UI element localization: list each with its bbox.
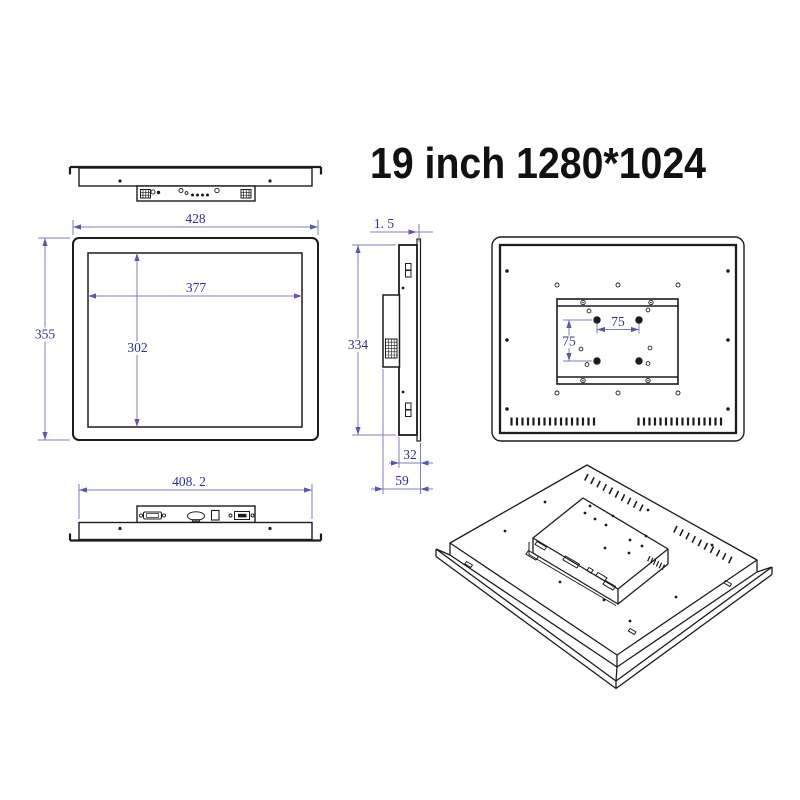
dim-bezel-thickness: 1. 5: [370, 216, 433, 242]
dim-label-428: 428: [185, 211, 206, 226]
bottom-body: [79, 523, 312, 540]
dim-label-1-5: 1. 5: [374, 216, 395, 231]
isometric-view: [436, 465, 772, 689]
page-title: 19 inch 1280*1024: [370, 139, 706, 188]
dim-front-height: 355: [33, 238, 71, 440]
dim-label-59: 59: [395, 473, 409, 488]
dim-label-355: 355: [35, 327, 56, 342]
dim-front-width: 428: [73, 211, 318, 235]
technical-drawing: 19 inch 1280*1024: [0, 0, 800, 800]
side-body: [399, 245, 417, 435]
dim-label-334: 334: [348, 337, 369, 352]
dim-label-75h: 75: [611, 314, 625, 329]
dim-label-32: 32: [403, 447, 417, 462]
side-view: 334 1. 5 32 59: [345, 216, 434, 494]
dim-label-377: 377: [186, 280, 207, 295]
dim-label-302: 302: [127, 340, 147, 355]
top-view: [70, 167, 321, 201]
top-body: [79, 168, 312, 186]
rear-view: 75 75: [492, 237, 744, 441]
front-bezel: [73, 238, 318, 440]
front-view: 428 355 377 302: [33, 211, 319, 440]
bottom-view: 408. 2: [70, 474, 321, 541]
dim-label-75v: 75: [562, 334, 576, 349]
dim-label-408-2: 408. 2: [172, 474, 206, 489]
